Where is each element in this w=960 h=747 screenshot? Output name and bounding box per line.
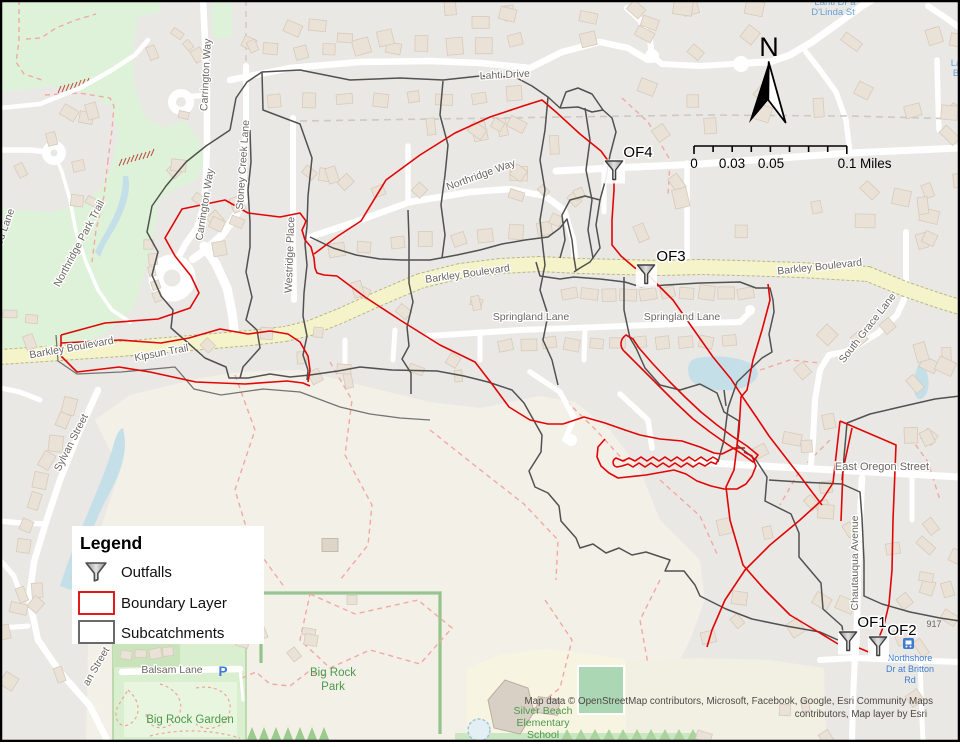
- svg-text:Chautauqua Avenue: Chautauqua Avenue: [849, 515, 861, 610]
- svg-text:Dr at Britton: Dr at Britton: [886, 664, 934, 674]
- svg-text:Legend: Legend: [80, 533, 142, 553]
- svg-text:Park: Park: [321, 681, 345, 693]
- svg-text:0.1: 0.1: [838, 156, 857, 171]
- svg-text:Boundary Layer: Boundary Layer: [121, 595, 227, 612]
- svg-text:Springland Lane: Springland Lane: [644, 311, 721, 323]
- svg-text:Rd: Rd: [904, 675, 916, 685]
- svg-text:N: N: [759, 32, 779, 62]
- svg-text:D'Linda St: D'Linda St: [811, 7, 855, 18]
- svg-text:Balsam Lane: Balsam Lane: [141, 664, 202, 676]
- svg-text:Northshore: Northshore: [888, 653, 933, 663]
- svg-text:Big Rock Garden: Big Rock Garden: [146, 714, 234, 726]
- svg-text:0.03: 0.03: [719, 156, 745, 171]
- svg-text:Elementary: Elementary: [516, 717, 570, 729]
- svg-text:Subcatchments: Subcatchments: [121, 625, 224, 642]
- svg-text:0.05: 0.05: [758, 156, 784, 171]
- svg-text:contributors, Map layer by Esr: contributors, Map layer by Esri: [795, 709, 927, 720]
- svg-text:Big Rock: Big Rock: [310, 667, 356, 679]
- svg-text:Outfalls: Outfalls: [121, 564, 172, 581]
- svg-text:Map data © OpenStreetMap contr: Map data © OpenStreetMap contributors, M…: [524, 696, 933, 707]
- svg-text:OF3: OF3: [656, 248, 685, 265]
- svg-text:0: 0: [690, 156, 698, 171]
- svg-text:P: P: [218, 664, 227, 679]
- svg-text:OF4: OF4: [623, 144, 652, 161]
- svg-text:Springland Lane: Springland Lane: [493, 311, 570, 323]
- svg-text:917: 917: [926, 619, 941, 629]
- svg-text:East Oregon Street: East Oregon Street: [835, 461, 929, 473]
- svg-text:Miles: Miles: [860, 156, 892, 171]
- svg-text:OF2: OF2: [887, 622, 916, 639]
- svg-text:OF1: OF1: [857, 614, 886, 631]
- svg-text:School: School: [527, 729, 559, 741]
